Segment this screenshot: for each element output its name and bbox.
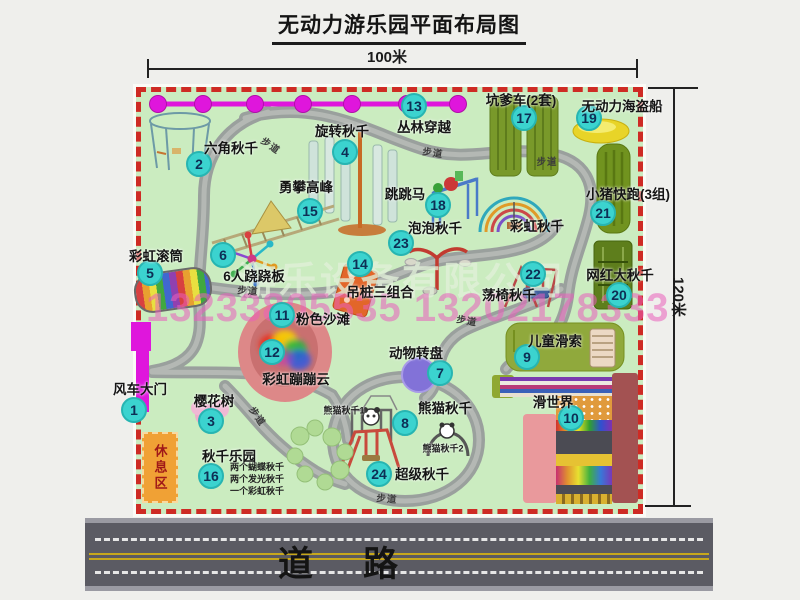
rest-area-label: 休息区 <box>151 444 170 492</box>
attraction-label-5: 彩虹滚筒 <box>129 245 183 265</box>
swing-park-note-line: 一个彩虹秋千 <box>230 485 284 497</box>
swing-park-note-line: 两个发光秋千 <box>230 473 284 485</box>
map-label-熊猫秋千1: 熊猫秋千1 <box>323 404 364 417</box>
map-label-熊猫秋千2: 熊猫秋千2 <box>422 442 463 455</box>
rest-area-box: 休息区 <box>142 432 178 503</box>
map-label-彩虹秋千: 彩虹秋千 <box>510 215 564 235</box>
attraction-badge-16: 16 <box>198 463 224 489</box>
attraction-label-1: 风车大门 <box>113 378 167 398</box>
small-swing-sketch <box>362 396 397 410</box>
swing-park-notes: 两个蝴蝶秋千两个发光秋千一个彩虹秋千 <box>230 461 284 497</box>
attraction-label-2: 六角秋千 <box>204 137 258 157</box>
attraction-badge-7: 7 <box>427 360 453 386</box>
attraction-badge-14: 14 <box>347 251 373 277</box>
attraction-badge-1: 1 <box>121 397 147 423</box>
width-dimension-tick-left <box>147 59 149 78</box>
slide-world-pink-column <box>523 414 557 503</box>
attraction-label-21: 小猪快跑(3组) <box>586 183 670 203</box>
attraction-label-3: 樱花树 <box>194 390 235 410</box>
width-dimension-label: 100米 <box>367 46 407 67</box>
attraction-badge-21: 21 <box>590 200 616 226</box>
road-label: 道路 <box>278 536 448 587</box>
attraction-badge-4: 4 <box>332 139 358 165</box>
attraction-badge-11: 11 <box>269 302 295 328</box>
attraction-label-23: 泡泡秋千 <box>408 217 462 237</box>
attraction-label-7: 动物转盘 <box>389 342 443 362</box>
footpath-label-7: 步道 <box>376 490 398 506</box>
attraction-badge-15: 15 <box>297 198 323 224</box>
attraction-label-14: 吊桩三组合 <box>346 281 414 301</box>
height-dimension-tick-bottom <box>645 505 691 507</box>
page-title: 无动力游乐园平面布局图 <box>272 9 526 45</box>
park-layout-figure: 无动力游乐园平面布局图 100米 120米 <box>0 0 800 600</box>
attraction-label-18: 跳跳马 <box>385 183 426 203</box>
windmill-gate-top <box>131 322 151 351</box>
attraction-label-24: 超级秋千 <box>395 463 449 483</box>
attraction-badge-18: 18 <box>425 192 451 218</box>
attraction-badge-20: 20 <box>606 282 632 308</box>
attraction-label-4: 旋转秋千 <box>315 120 369 140</box>
height-dimension-tick-top <box>648 87 698 89</box>
attraction-label-11: 粉色沙滩 <box>296 308 350 328</box>
attraction-label-12: 彩虹蹦蹦云 <box>262 368 330 388</box>
slide-world-row <box>556 454 612 466</box>
height-dimension-label: 120米 <box>669 277 690 317</box>
attraction-label-22: 荡椅秋千 <box>482 284 536 304</box>
attraction-badge-12: 12 <box>259 339 285 365</box>
attraction-badge-24: 24 <box>366 461 392 487</box>
attraction-label-6: 6人跷跷板 <box>223 265 285 285</box>
width-dimension-tick-right <box>636 59 638 78</box>
attraction-label-8: 熊猫秋千 <box>418 397 472 417</box>
slide-world-row <box>556 431 612 454</box>
attraction-label-9: 儿童滑索 <box>528 330 582 350</box>
attraction-label-15: 勇攀高峰 <box>279 176 333 196</box>
road-strip: 道路 <box>85 518 713 592</box>
attraction-label-19: 无动力海盗船 <box>582 95 663 115</box>
attraction-badge-3: 3 <box>198 408 224 434</box>
slide-world-row <box>556 494 612 504</box>
slide-world-row <box>556 485 612 494</box>
attraction-label-10: 滑世界 <box>533 391 574 411</box>
slide-world-brown-column <box>612 373 638 503</box>
width-dimension-line <box>148 68 637 70</box>
slide-world-row <box>556 466 612 485</box>
attraction-label-20: 网红大秋千 <box>586 264 654 284</box>
attraction-label-17: 坑爹车(2套) <box>486 89 557 109</box>
attraction-badge-8: 8 <box>392 410 418 436</box>
attraction-label-16: 秋千乐园 <box>202 445 256 465</box>
footpath-label-2: 步道 <box>422 144 445 161</box>
footpath-label-3: 步道 <box>536 154 557 168</box>
attraction-label-13: 丛林穿越 <box>397 116 451 136</box>
